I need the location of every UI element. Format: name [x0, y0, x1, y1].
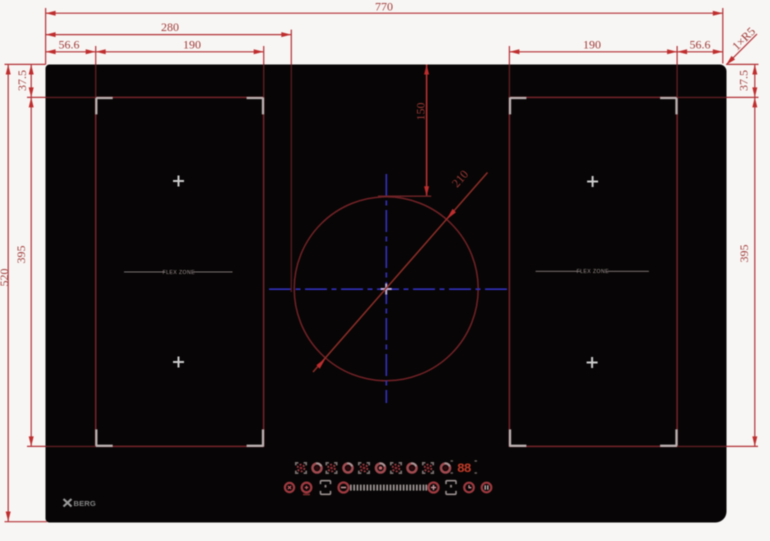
- svg-text:FLEX ZONE: FLEX ZONE: [577, 269, 610, 275]
- svg-text:395: 395: [737, 245, 751, 263]
- svg-text:56.6: 56.6: [690, 37, 711, 51]
- svg-text:520: 520: [0, 269, 11, 287]
- svg-text:770: 770: [375, 0, 393, 14]
- svg-text:BERG: BERG: [74, 499, 96, 508]
- svg-text:56.6: 56.6: [59, 37, 80, 51]
- svg-text:280: 280: [161, 20, 179, 34]
- svg-text:150: 150: [413, 103, 427, 121]
- svg-text:190: 190: [583, 37, 601, 51]
- svg-text:190: 190: [183, 37, 201, 51]
- svg-text:37.5: 37.5: [737, 70, 751, 91]
- svg-text:395: 395: [14, 246, 28, 264]
- svg-text:88: 88: [457, 461, 472, 476]
- svg-text:37.5: 37.5: [15, 70, 29, 91]
- svg-text:FLEX ZONE: FLEX ZONE: [163, 270, 196, 276]
